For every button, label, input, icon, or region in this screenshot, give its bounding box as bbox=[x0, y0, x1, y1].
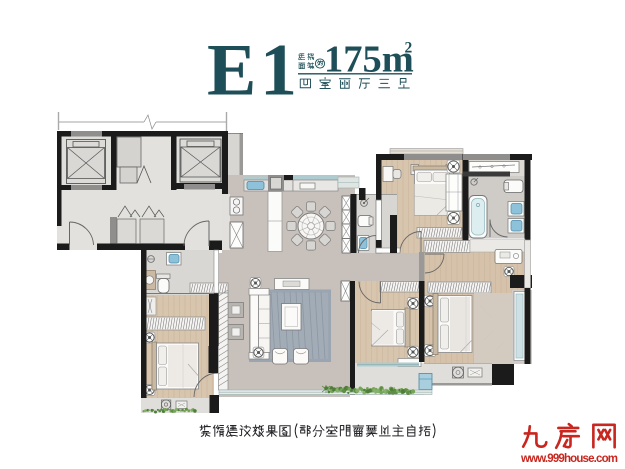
svg-text:2: 2 bbox=[405, 40, 413, 57]
svg-text:E: E bbox=[207, 30, 256, 112]
svg-text:1: 1 bbox=[260, 30, 297, 112]
svg-text:www.999house.com: www.999house.com bbox=[520, 453, 618, 465]
